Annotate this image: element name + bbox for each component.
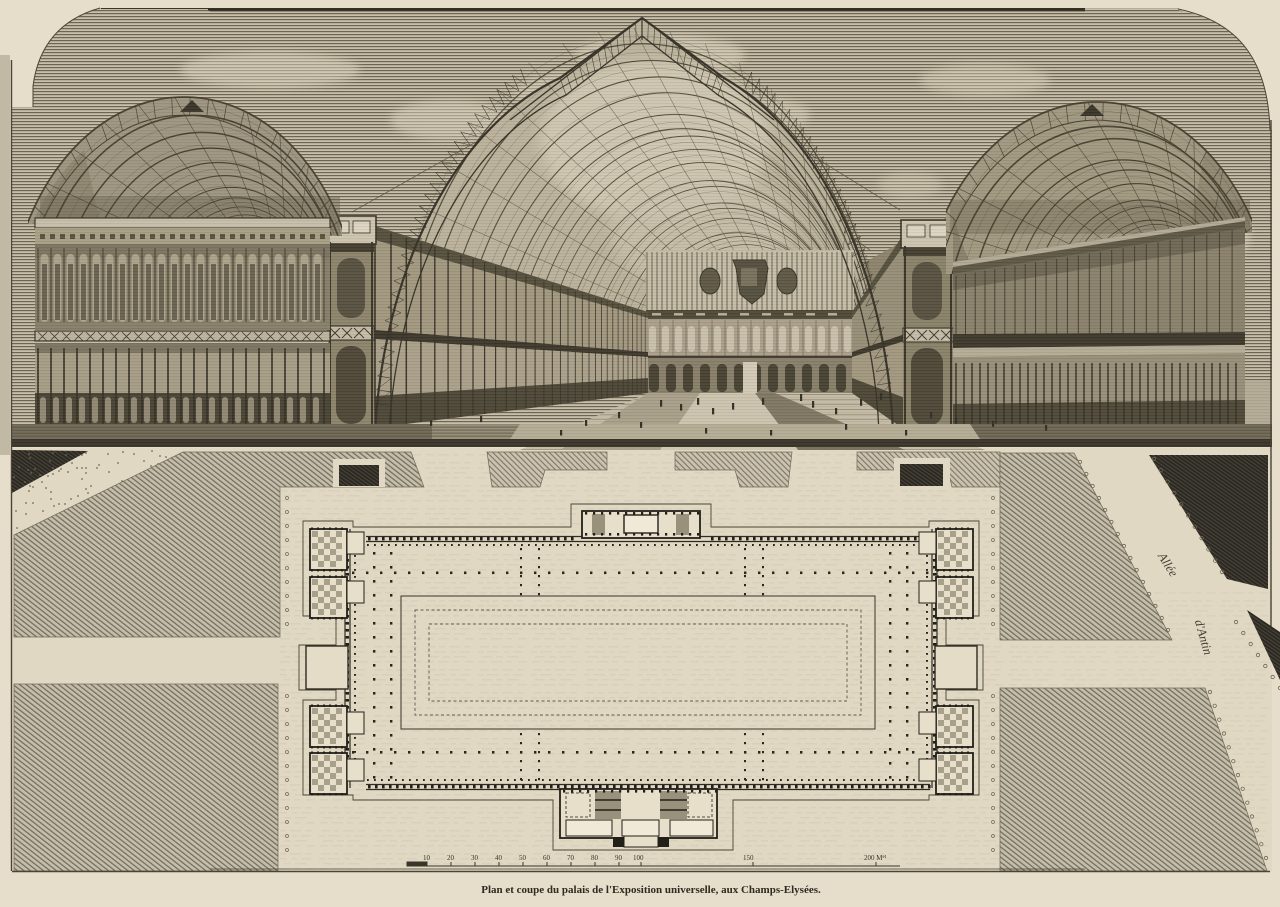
svg-text:70: 70 (567, 854, 575, 862)
svg-text:40: 40 (495, 854, 503, 862)
svg-text:80: 80 (591, 854, 599, 862)
svg-text:30: 30 (471, 854, 479, 862)
svg-text:Plan et coupe du palais de l'E: Plan et coupe du palais de l'Exposition … (481, 884, 821, 896)
svg-text:90: 90 (615, 854, 623, 862)
svg-text:60: 60 (543, 854, 551, 862)
svg-text:50: 50 (519, 854, 527, 862)
svg-text:10: 10 (423, 854, 431, 862)
svg-text:150: 150 (743, 854, 754, 862)
svg-text:20: 20 (447, 854, 455, 862)
svg-text:100: 100 (633, 854, 644, 862)
